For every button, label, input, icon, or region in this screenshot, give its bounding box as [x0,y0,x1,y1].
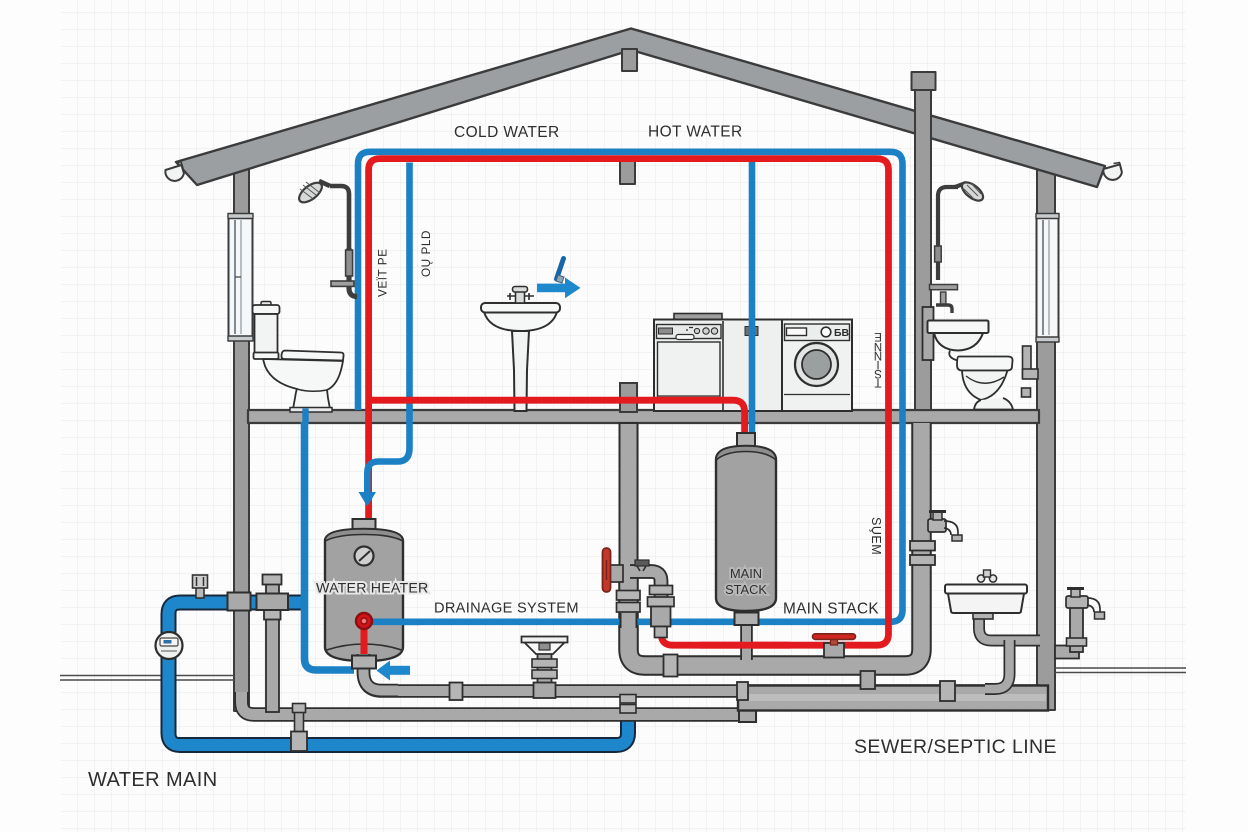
svg-text:COLD WATER: COLD WATER [454,124,560,141]
svg-text:DRAINAGE SYSTEM: DRAINAGE SYSTEM [434,601,579,617]
svg-text:STACK: STACK [725,582,767,597]
svg-text:SEWER/SEPTIC LINE: SEWER/SEPTIC LINE [854,736,1057,758]
svg-text:OŲ PLD: OŲ PLD [419,230,433,277]
svg-text:WATER HEATER: WATER HEATER [316,581,428,597]
svg-text:БВ: БВ [834,327,850,339]
svg-text:MAIN: MAIN [730,566,762,581]
svg-text:T: T [874,376,881,388]
svg-text:MAIN STACK: MAIN STACK [783,601,879,618]
svg-text:VEÏT PE: VEÏT PE [376,248,390,297]
svg-text:WATER MAIN: WATER MAIN [88,769,218,791]
svg-text:HOT WATER: HOT WATER [648,124,743,141]
svg-text:SU̧EM: SU̧EM [869,517,883,555]
